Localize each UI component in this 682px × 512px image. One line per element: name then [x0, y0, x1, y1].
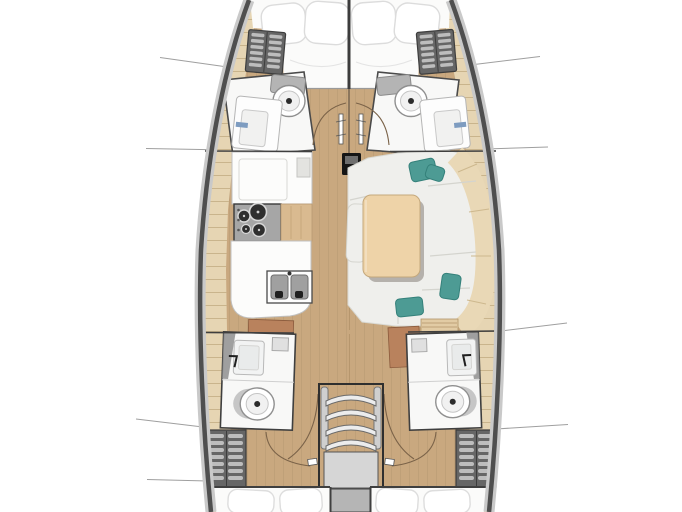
yacht-floor-plan	[0, 0, 682, 512]
aft-cabin-left	[213, 488, 330, 512]
pillow	[423, 489, 470, 512]
double-sink	[267, 271, 312, 303]
berth-center-partition	[348, 0, 351, 89]
engine-box	[331, 489, 371, 512]
galley	[231, 152, 312, 318]
pillow-teal	[395, 297, 424, 318]
sink-fixture	[447, 339, 477, 376]
fwd-head-left	[223, 72, 315, 156]
aft-head-right	[406, 332, 481, 430]
pillow	[227, 489, 274, 512]
pillow	[351, 1, 398, 46]
sink-fixture	[231, 96, 282, 153]
pillow	[375, 488, 419, 512]
drain	[295, 291, 303, 298]
aft-cabin-right	[370, 488, 487, 512]
floor-plan-canvas	[0, 0, 682, 512]
fwd-head-right	[367, 72, 471, 156]
cutting-board	[281, 204, 312, 241]
pillow-teal	[439, 273, 461, 300]
stove	[234, 204, 281, 242]
vent-hatch	[272, 337, 288, 351]
pillow	[304, 1, 351, 46]
counter-item	[297, 158, 310, 177]
door-leaf	[385, 458, 395, 465]
aft-head-left	[220, 332, 295, 430]
vent-hatch	[412, 339, 427, 353]
pillow	[279, 488, 323, 512]
dining-table	[363, 195, 420, 277]
faucet	[288, 272, 292, 276]
sink-fixture	[419, 96, 470, 153]
slatted-step	[421, 319, 458, 332]
stair-landing	[324, 452, 378, 488]
bow-locker-left	[245, 30, 286, 75]
salon	[346, 150, 491, 329]
door-leaf	[308, 458, 318, 465]
drain	[275, 291, 283, 298]
bow-locker-right	[416, 29, 457, 74]
